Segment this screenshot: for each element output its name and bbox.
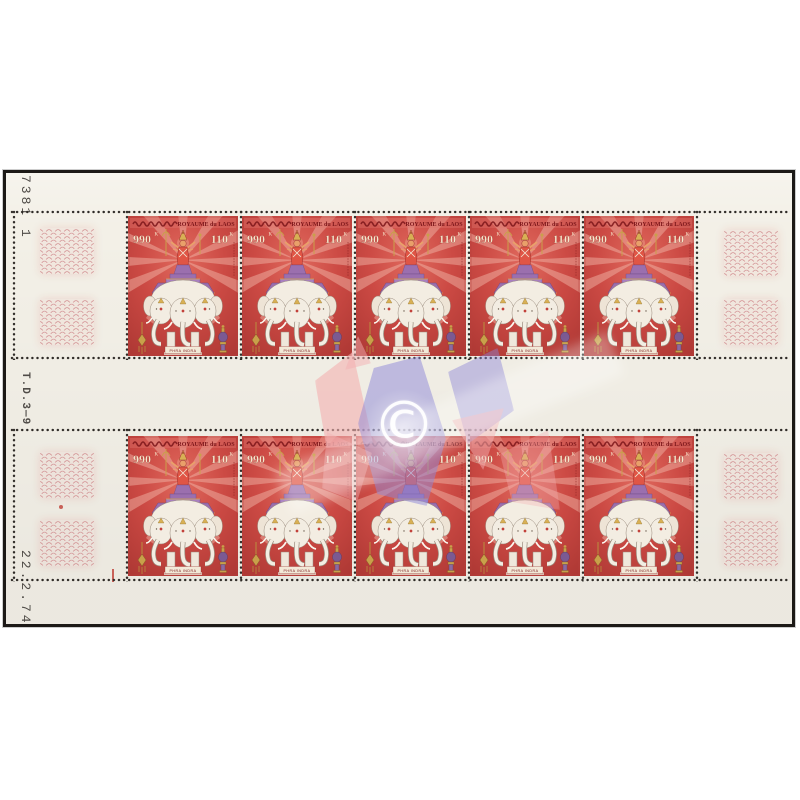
stamp-pane-bottom: ROYAUME du LAOS 990 K 110 K [128, 436, 694, 576]
denomination: 110 [211, 452, 228, 466]
stamp: ROYAUME du LAOS 990 K 110 K [242, 216, 352, 356]
value-lao-numerals: 990 [589, 232, 607, 246]
three-headed-elephant [600, 500, 679, 575]
stamp-caption: PHRA INDRA [284, 349, 311, 353]
stamp-caption: PHRA INDRA [626, 349, 653, 353]
press-mark: T.D.3—9 [19, 372, 31, 425]
stamp: ROYAUME du LAOS 990 K 110 K [356, 436, 466, 576]
perforation-column [695, 210, 699, 360]
stamp-caption: PHRA INDRA [170, 349, 197, 353]
denomination-suffix: K [686, 233, 690, 238]
stamp: ROYAUME du LAOS 990 K 110 K [356, 216, 466, 356]
three-headed-elephant [486, 500, 565, 575]
three-headed-elephant [600, 280, 679, 355]
country-label: ROYAUME du LAOS [177, 442, 235, 448]
stamp-artwork: ROYAUME du LAOS 990 K 110 K [242, 436, 352, 576]
three-headed-elephant [144, 500, 223, 575]
guilloche-block-left-2 [40, 299, 94, 345]
value-lao-numerals: 990 [475, 232, 493, 246]
value-lao-numerals: 990 [361, 232, 379, 246]
denomination-suffix: K [344, 233, 348, 238]
country-label: ROYAUME du LAOS [177, 222, 235, 228]
perforation-column [12, 428, 16, 582]
stamp-caption: PHRA INDRA [398, 349, 425, 353]
perforation-column [695, 428, 699, 582]
value-lao-numerals: 990 [133, 452, 151, 466]
denomination-suffix: K [572, 453, 576, 458]
stamp-artwork: ROYAUME du LAOS 990 K 110 K [128, 436, 238, 576]
sheet-number: 7381 1 [18, 175, 33, 240]
three-headed-elephant [372, 280, 451, 355]
denomination: 110 [439, 232, 456, 246]
stamp-artwork: ROYAUME du LAOS 990 K 110 K [242, 216, 352, 356]
guilloche-block-left-4 [40, 520, 94, 566]
stamp-caption: PHRA INDRA [398, 569, 425, 573]
value-lao-numerals: 990 [247, 452, 265, 466]
value-lao-suffix: K [383, 453, 387, 458]
three-headed-elephant [258, 500, 337, 575]
stamp-caption: PHRA INDRA [512, 569, 539, 573]
value-lao-suffix: K [155, 453, 159, 458]
stamp-artwork: ROYAUME du LAOS 990 K 110 K [584, 216, 694, 356]
denomination: 110 [667, 452, 684, 466]
country-label: ROYAUME du LAOS [291, 442, 349, 448]
denomination-suffix: K [572, 233, 576, 238]
denomination: 110 [667, 232, 684, 246]
three-headed-elephant [144, 280, 223, 355]
country-label: ROYAUME du LAOS [519, 442, 577, 448]
stamp: ROYAUME du LAOS 990 K 110 K [470, 436, 580, 576]
denomination-suffix: K [686, 453, 690, 458]
guilloche-block-left-1 [40, 228, 94, 274]
denomination: 110 [553, 452, 570, 466]
denomination-suffix: K [458, 233, 462, 238]
value-lao-numerals: 990 [361, 452, 379, 466]
stamp: ROYAUME du LAOS 990 K 110 K [128, 436, 238, 576]
stamp-artwork: ROYAUME du LAOS 990 K 110 K [356, 216, 466, 356]
denomination-suffix: K [344, 453, 348, 458]
registration-dot [59, 505, 63, 509]
stamp-sheet: 7381 1 T.D.3—9 22.2.74 [3, 170, 795, 627]
value-lao-numerals: 990 [247, 232, 265, 246]
stamp-caption: PHRA INDRA [626, 569, 653, 573]
value-lao-suffix: K [155, 233, 159, 238]
stamp-artwork: ROYAUME du LAOS 990 K 110 K [470, 436, 580, 576]
stamp: ROYAUME du LAOS 990 K 110 K [242, 436, 352, 576]
denomination: 110 [553, 232, 570, 246]
country-label: ROYAUME du LAOS [291, 222, 349, 228]
guilloche-block-right-2 [724, 299, 778, 345]
denomination: 110 [325, 452, 342, 466]
denomination: 110 [211, 232, 228, 246]
three-headed-elephant [258, 280, 337, 355]
guilloche-block-right-3 [724, 453, 778, 499]
stamp: ROYAUME du LAOS 990 K 110 K [584, 436, 694, 576]
country-label: ROYAUME du LAOS [405, 222, 463, 228]
value-lao-suffix: K [611, 233, 615, 238]
denomination: 110 [325, 232, 342, 246]
stamp-caption: PHRA INDRA [170, 569, 197, 573]
value-lao-suffix: K [611, 453, 615, 458]
value-lao-suffix: K [497, 453, 501, 458]
stamp-artwork: ROYAUME du LAOS 990 K 110 K [584, 436, 694, 576]
value-lao-numerals: 990 [475, 452, 493, 466]
value-lao-suffix: K [269, 233, 273, 238]
three-headed-elephant [486, 280, 565, 355]
stamp: ROYAUME du LAOS 990 K 110 K [128, 216, 238, 356]
country-label: ROYAUME du LAOS [519, 222, 577, 228]
stamp-artwork: ROYAUME du LAOS 990 K 110 K [470, 216, 580, 356]
denomination: 110 [439, 452, 456, 466]
denomination-suffix: K [230, 453, 234, 458]
country-label: ROYAUME du LAOS [405, 442, 463, 448]
guilloche-block-left-3 [40, 452, 94, 498]
stamp: ROYAUME du LAOS 990 K 110 K [470, 216, 580, 356]
stamp: ROYAUME du LAOS 990 K 110 K [584, 216, 694, 356]
value-lao-numerals: 990 [589, 452, 607, 466]
stamp-caption: PHRA INDRA [284, 569, 311, 573]
stamp-artwork: ROYAUME du LAOS 990 K 110 K [356, 436, 466, 576]
value-lao-suffix: K [383, 233, 387, 238]
guilloche-block-right-4 [724, 520, 778, 566]
value-lao-numerals: 990 [133, 232, 151, 246]
guilloche-block-right-1 [724, 230, 778, 276]
denomination-suffix: K [458, 453, 462, 458]
value-lao-suffix: K [497, 233, 501, 238]
stamp-pane-top: ROYAUME du LAOS 990 K 110 K [128, 216, 694, 356]
perforation-column [12, 210, 16, 360]
three-headed-elephant [372, 500, 451, 575]
stamp-sheet-photo: 7381 1 T.D.3—9 22.2.74 [0, 0, 800, 800]
denomination-suffix: K [230, 233, 234, 238]
stamp-caption: PHRA INDRA [512, 349, 539, 353]
stamp-artwork: ROYAUME du LAOS 990 K 110 K [128, 216, 238, 356]
country-label: ROYAUME du LAOS [633, 442, 691, 448]
value-lao-suffix: K [269, 453, 273, 458]
print-date: 22.2.74 [18, 550, 33, 626]
country-label: ROYAUME du LAOS [633, 222, 691, 228]
